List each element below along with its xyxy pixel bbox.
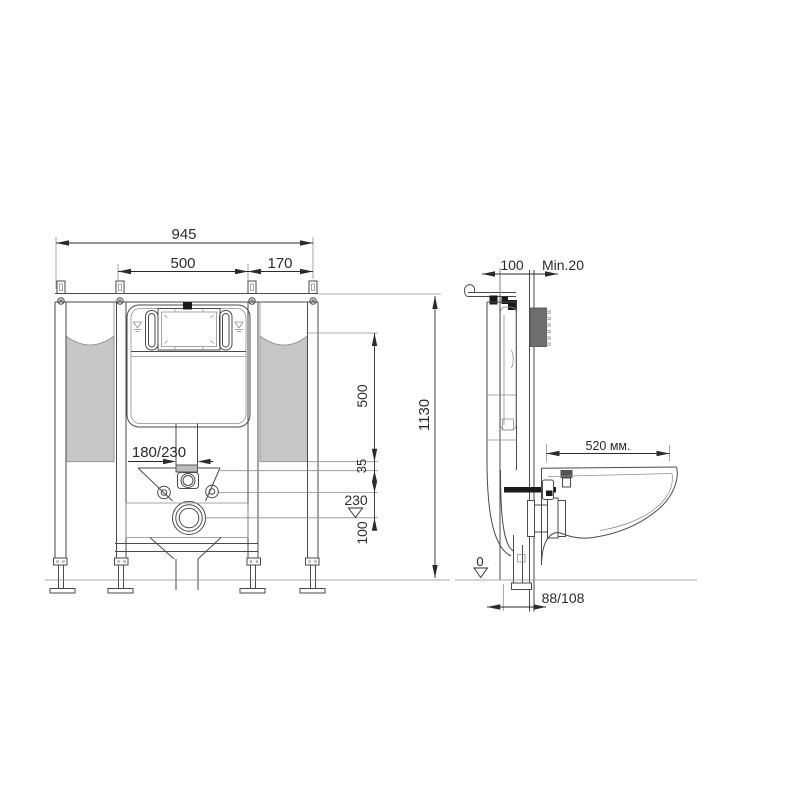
foot xyxy=(300,558,325,593)
dim-label-outlet-spacing: 100 xyxy=(354,521,370,545)
dim-520: 520 мм. xyxy=(547,439,670,462)
dim-170: 170 xyxy=(248,255,313,274)
bracket-bolt xyxy=(490,296,498,305)
flush-pipe-stub xyxy=(176,465,198,472)
water-level-marks xyxy=(134,322,244,332)
foot xyxy=(108,558,133,593)
dimensions: 945 500 170 1130 xyxy=(56,226,670,611)
technical-drawing-page: 945 500 170 1130 xyxy=(0,0,800,800)
dim-label-frame-depth: 100 xyxy=(500,257,524,273)
foot xyxy=(240,558,265,593)
mounting-tabs xyxy=(57,281,317,294)
dim-label-overall-height: 1130 xyxy=(416,399,433,431)
foot xyxy=(50,558,75,593)
dim-500-top: 500 xyxy=(118,255,248,281)
cistern-side xyxy=(501,307,517,430)
installation-frame-drawing: 945 500 170 1130 xyxy=(0,0,800,800)
dim-label-gap-35: 35 xyxy=(354,459,369,473)
dim-1130: 1130 xyxy=(416,296,438,578)
flush-rod-slots xyxy=(146,311,233,351)
dim-100-min20: 100 Min.20 xyxy=(482,257,584,295)
push-rod-black-square xyxy=(183,302,192,310)
dim-88-108: 88/108 xyxy=(487,584,585,611)
drain-elbow xyxy=(487,460,532,590)
dim-180-230: 180/230 xyxy=(128,444,213,464)
flush-plate xyxy=(531,308,551,347)
wall-bracket xyxy=(464,285,517,310)
dim-label-floor-datum: 0 xyxy=(476,554,483,569)
dim-label-outlet-level: 230 xyxy=(344,492,368,508)
bottom-crossbar xyxy=(115,544,258,552)
outlet-connector xyxy=(528,498,566,538)
dim-label-side-offset: 170 xyxy=(267,255,292,272)
access-window xyxy=(158,309,220,351)
top-rail xyxy=(55,294,441,303)
front-view xyxy=(50,281,441,593)
frame-profile xyxy=(487,268,517,580)
dim-label-tank-height: 500 xyxy=(354,384,370,408)
fixing-rod xyxy=(504,470,573,500)
inner-rails xyxy=(114,302,260,558)
datum-zero: 0 xyxy=(474,554,488,578)
side-panel-left xyxy=(66,336,114,462)
dim-label-cistern-width: 500 xyxy=(170,255,195,272)
dim-label-min-wall: Min.20 xyxy=(542,257,584,273)
side-view xyxy=(464,268,677,612)
legs-and-feet xyxy=(50,558,325,593)
dim-label-flush-pipe-offset: 180/230 xyxy=(132,444,186,461)
dim-label-bowl-length: 520 мм. xyxy=(586,439,631,453)
dim-label-overall-width: 945 xyxy=(171,226,196,243)
waste-outlet-circle xyxy=(173,502,206,535)
dim-label-outlet-offset: 88/108 xyxy=(542,590,585,606)
side-panel-right xyxy=(260,336,308,462)
